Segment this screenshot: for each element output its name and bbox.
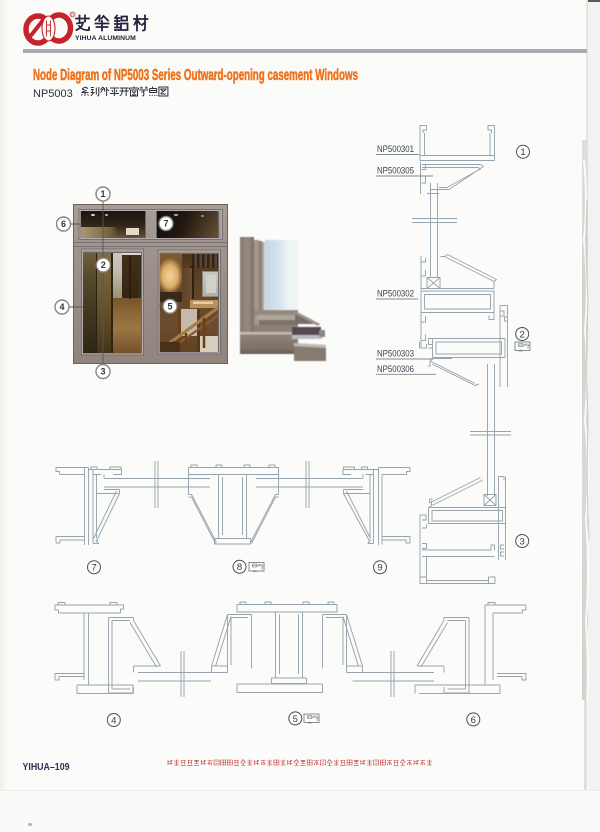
svg-text:9: 9 xyxy=(377,563,382,574)
svg-text:NP500301: NP500301 xyxy=(377,144,414,154)
svg-text:NP500303: NP500303 xyxy=(377,349,414,359)
svg-text:5: 5 xyxy=(293,714,298,725)
svg-text:2: 2 xyxy=(520,329,525,340)
svg-text:YIHUA–109: YIHUA–109 xyxy=(23,762,70,773)
svg-text:1: 1 xyxy=(520,147,525,158)
svg-text:NP500306: NP500306 xyxy=(377,364,414,374)
svg-text:3: 3 xyxy=(520,536,525,547)
svg-text:7: 7 xyxy=(91,563,96,574)
svg-text:NP500302: NP500302 xyxy=(377,289,414,299)
svg-text:4: 4 xyxy=(111,715,116,726)
svg-text:6: 6 xyxy=(471,715,476,726)
svg-text:NP500305: NP500305 xyxy=(377,166,414,176)
svg-text:8: 8 xyxy=(237,562,242,573)
